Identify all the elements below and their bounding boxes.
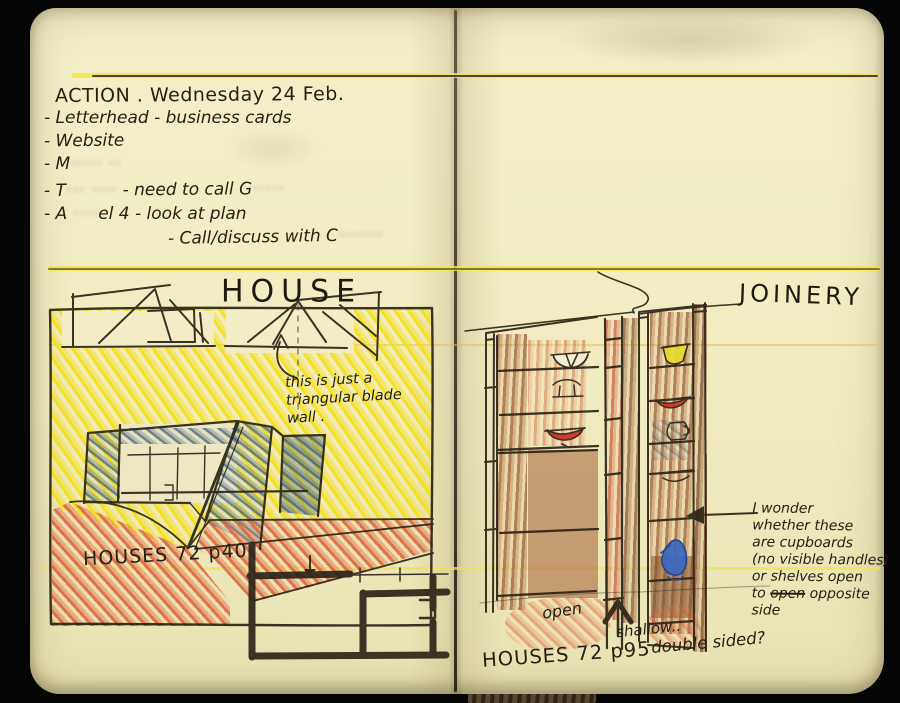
action-item-plan: - A ····el 4 - look at plan bbox=[44, 204, 247, 224]
elevation-blade-wash bbox=[279, 432, 326, 517]
ruled-line-top-pen bbox=[92, 75, 878, 77]
annotation-line: side bbox=[751, 602, 893, 620]
shelf-wood-wash bbox=[694, 304, 707, 652]
joinery-annotation: I wonder whether these are cupboards (no… bbox=[751, 500, 894, 620]
bleed-through-smudge bbox=[560, 14, 820, 66]
struck-word: open bbox=[770, 586, 805, 602]
shelf-wood-wash bbox=[605, 320, 622, 620]
shelf-wood-wash bbox=[623, 318, 640, 623]
action-item-call: - T··· ···· - need to call G····· bbox=[44, 179, 284, 201]
shelf-wood-wash bbox=[528, 450, 598, 598]
annotation-text: to bbox=[752, 585, 771, 601]
shelf-wood-wash bbox=[497, 334, 527, 610]
annotation-line: are cupboards bbox=[752, 534, 894, 552]
action-heading: ACTION . Wednesday 24 Feb. bbox=[55, 83, 345, 107]
action-item-redacted: - M····· ·· bbox=[44, 154, 121, 174]
redacted-scribble: ····· ·· bbox=[70, 154, 121, 174]
elevation-wall-wash bbox=[84, 430, 122, 505]
joinery-title: JOINERY bbox=[739, 279, 864, 311]
action-item-text: el 4 - look at plan bbox=[98, 204, 246, 224]
redacted-scribble: ··· ···· bbox=[66, 180, 117, 200]
redacted-scribble: ······· bbox=[338, 225, 383, 246]
action-item-text: - need to call G bbox=[117, 179, 252, 200]
shelf-shadow-wash bbox=[652, 420, 690, 460]
action-item-text: - A bbox=[44, 204, 73, 224]
action-item-letterhead: - Letterhead - business cards bbox=[44, 108, 292, 128]
annotation-line: whether these bbox=[752, 517, 894, 535]
redacted-scribble: ····· bbox=[252, 179, 284, 199]
house-title: HOUSE bbox=[221, 273, 362, 310]
roof-sketch-patch bbox=[226, 306, 354, 353]
action-item-website: - Website bbox=[44, 131, 125, 152]
house-annotation: this is just a triangular blade wall . bbox=[285, 366, 438, 428]
bleed-through-smudge bbox=[225, 128, 320, 170]
elevation-roof-band bbox=[120, 428, 239, 444]
redacted-scribble: ···· bbox=[73, 204, 99, 224]
annotation-line: or shelves open bbox=[752, 568, 894, 586]
page-gutter bbox=[454, 10, 457, 692]
shelf-wood-wash bbox=[528, 340, 586, 446]
annotation-line: I wonder bbox=[752, 500, 894, 518]
action-item-discuss: - Call/discuss with C······· bbox=[168, 225, 383, 249]
ruled-line-mid-pen bbox=[48, 268, 880, 270]
photo-background: ACTION . Wednesday 24 Feb. - Letterhead … bbox=[0, 0, 900, 703]
action-item-text: - Call/discuss with C bbox=[168, 226, 338, 249]
annotation-text: opposite bbox=[805, 586, 870, 603]
annotation-line: to open opposite bbox=[752, 585, 894, 603]
roof-sketch-patch bbox=[62, 311, 214, 348]
action-item-text: - M bbox=[44, 154, 70, 174]
action-item-text: - T bbox=[44, 181, 66, 201]
annotation-line: (no visible handles) bbox=[752, 551, 894, 569]
